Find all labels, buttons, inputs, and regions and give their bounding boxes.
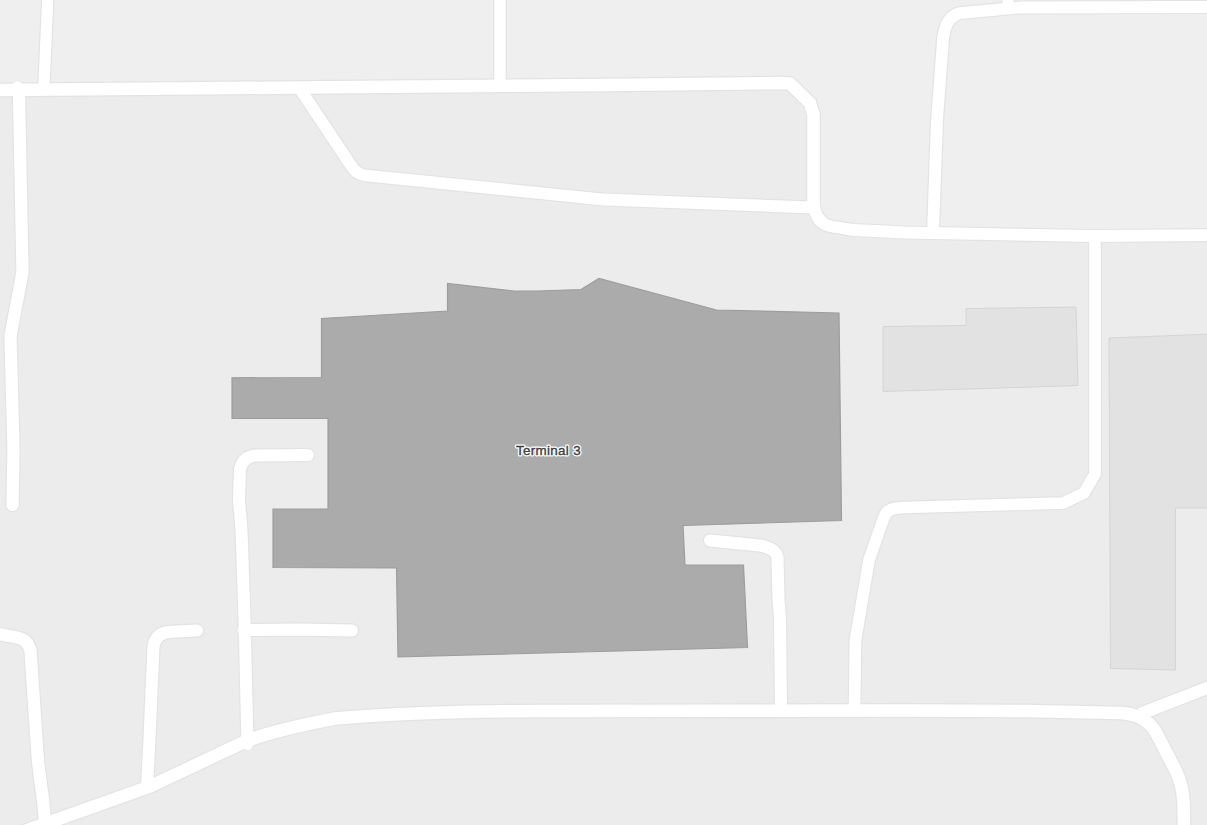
svg-text:Terminal 3: Terminal 3 [516, 443, 581, 458]
